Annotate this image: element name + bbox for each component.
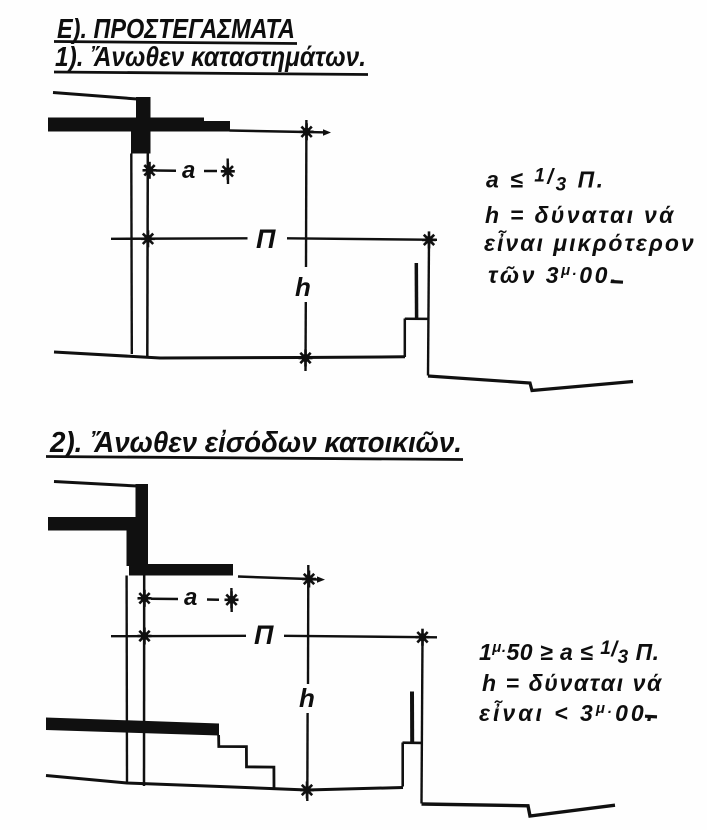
svg-text:τῶν 3μ.00.: τῶν 3μ.00.	[488, 262, 619, 288]
svg-text:1). Ἄνωθεν καταστημάτων.: 1). Ἄνωθεν καταστημάτων.	[55, 41, 366, 72]
svg-text:εἶναι < 3μ.00.: εἶναι < 3μ.00.	[479, 700, 656, 726]
svg-text:1μ.50 ≥ a ≤ 1/3 Π.: 1μ.50 ≥ a ≤ 1/3 Π.	[479, 638, 660, 668]
svg-text:h: h	[295, 272, 311, 302]
svg-text:h = δύναται νά: h = δύναται νά	[482, 670, 663, 696]
svg-text:Π: Π	[256, 224, 276, 254]
svg-text:Ε). ΠΡΟΣΤΕΓΑΣΜΑΤΑ: Ε). ΠΡΟΣΤΕΓΑΣΜΑΤΑ	[57, 13, 295, 44]
svg-text:a: a	[182, 157, 195, 184]
svg-text:Π: Π	[254, 620, 274, 650]
svg-text:a: a	[184, 584, 197, 611]
svg-text:h: h	[299, 683, 315, 713]
svg-text:a ≤ 1/3 Π.: a ≤ 1/3 Π.	[486, 166, 606, 196]
svg-text:2). Ἄνωθεν εἰσόδων κατοικιῶν.: 2). Ἄνωθεν εἰσόδων κατοικιῶν.	[49, 427, 462, 459]
svg-text:h = δύναται νά: h = δύναται νά	[485, 202, 676, 228]
svg-text:εἶναι μικρότερον: εἶναι μικρότερον	[484, 230, 696, 256]
